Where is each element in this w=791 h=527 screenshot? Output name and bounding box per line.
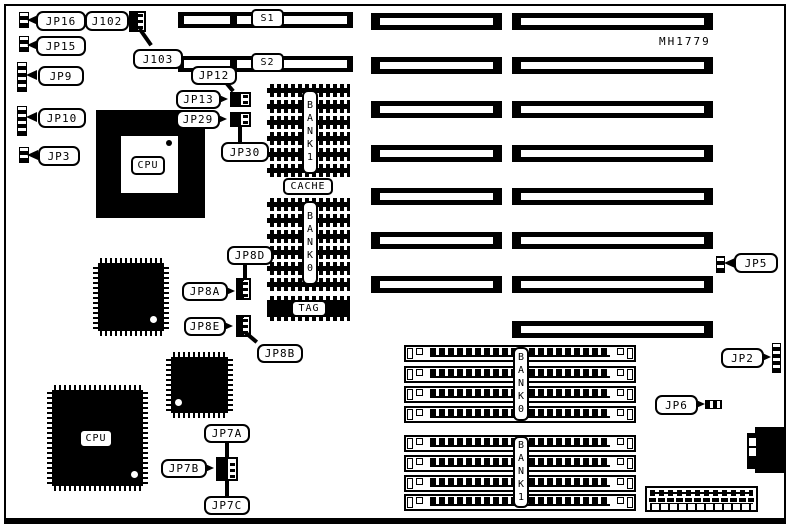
pointer-jp9: [26, 70, 37, 80]
callout-s2: S2: [251, 53, 284, 72]
callout-jp10: JP10: [38, 108, 86, 128]
simm-latch: [407, 438, 413, 449]
isa-slot-long: [512, 57, 713, 74]
simm-latch: [627, 389, 633, 400]
pointer-jp7c: [225, 479, 229, 497]
simm-latch: [617, 438, 624, 445]
callout-jp8a: JP8A: [182, 282, 228, 301]
simm-latch: [617, 458, 624, 465]
simm-latch: [416, 369, 423, 376]
qfp-pins-bottom: [54, 486, 141, 491]
callout-jp6: JP6: [655, 395, 698, 415]
pin1-dot: [131, 471, 138, 478]
callout-cpu-qfp: CPU: [79, 429, 113, 448]
simm-latch: [407, 497, 413, 508]
callout-jp3: JP3: [38, 146, 80, 166]
callout-s1: S1: [251, 9, 284, 28]
pointer-jp30: [238, 127, 242, 143]
simm-latch: [407, 478, 413, 489]
isa-slot-short: [371, 57, 502, 74]
label-simm-bank1: BANK1: [513, 436, 529, 508]
pointer-jp8d: [243, 263, 247, 280]
power-connector-pins: [650, 490, 753, 496]
simm-latch: [407, 458, 413, 469]
pin1-dot: [150, 316, 157, 323]
callout-cpu-socket: CPU: [131, 156, 165, 175]
simm-latch: [416, 497, 423, 504]
qfp-pins-right: [143, 392, 148, 484]
simm-latch: [627, 497, 633, 508]
callout-jp7c: JP7C: [204, 496, 250, 515]
simm-latch: [407, 369, 413, 380]
callout-jp2: JP2: [721, 348, 764, 368]
qfp-pins-bottom: [173, 413, 226, 418]
isa-slot-short: [371, 145, 502, 162]
pin1-dot: [175, 399, 182, 406]
callout-cache: CACHE: [283, 178, 333, 195]
isa-slot-short: [371, 13, 502, 30]
simm-latch: [416, 348, 423, 355]
isa-slot-long: [512, 276, 713, 293]
simm-latch: [617, 369, 624, 376]
callout-jp16: JP16: [36, 11, 86, 31]
simm-latch: [407, 348, 413, 359]
power-connector-sockets: [650, 503, 753, 510]
power-connector-key: [649, 498, 754, 502]
isa-slot-long: [512, 13, 713, 30]
simm-latch: [627, 369, 633, 380]
label-simm-bank0: BANK0: [513, 347, 529, 421]
keyboard-connector-pin: [749, 448, 756, 456]
simm-latch: [416, 438, 423, 445]
label-cache-bank0: BANK0: [302, 201, 318, 285]
simm-latch: [416, 478, 423, 485]
simm-latch: [617, 389, 624, 396]
jumper-block-jp8ad: [236, 278, 251, 300]
simm-latch: [627, 348, 633, 359]
isa-slot-short: [371, 232, 502, 249]
callout-jp7a: JP7A: [204, 424, 250, 443]
isa-slot-long: [512, 145, 713, 162]
callout-j102: J102: [85, 11, 129, 31]
callout-jp8b: JP8B: [257, 344, 303, 363]
callout-jp30: JP30: [221, 142, 269, 162]
keyboard-connector-pin: [749, 438, 756, 446]
pointer-jp3: [27, 150, 38, 160]
callout-jp12: JP12: [191, 66, 237, 85]
isa-slot-short: [371, 101, 502, 118]
simm-latch: [627, 458, 633, 469]
simm-latch: [627, 478, 633, 489]
jumper-jp6-pins: [705, 400, 722, 409]
label-cache-bank1: BANK1: [302, 90, 318, 174]
jumper-block-jp13: [230, 92, 251, 107]
isa-slot-long: [512, 188, 713, 205]
callout-jp15: JP15: [36, 36, 86, 56]
qfp-chip: [93, 258, 169, 336]
simm-latch: [416, 458, 423, 465]
callout-jp29: JP29: [176, 110, 220, 129]
jumper-block-jp7: [216, 457, 238, 481]
slot-divider: [230, 12, 237, 28]
simm-latch: [617, 497, 624, 504]
callout-tag: TAG: [291, 300, 327, 317]
callout-jp8e: JP8E: [184, 317, 226, 336]
power-connector: [645, 486, 758, 512]
pointer-jp10: [26, 112, 37, 122]
isa-slot-long: [512, 101, 713, 118]
pointer-jp7a: [225, 441, 229, 459]
jumper-jp2-pins: [772, 343, 781, 373]
simm-latch: [617, 478, 624, 485]
simm-latch: [617, 409, 624, 416]
callout-jp13: JP13: [176, 90, 221, 109]
isa-slot-short: [371, 188, 502, 205]
simm-latch: [416, 409, 423, 416]
isa-slot-short: [371, 276, 502, 293]
isa-slot-long: [512, 321, 713, 338]
callout-j103: J103: [133, 49, 183, 69]
motherboard-diagram: MH1779 JP16 JP15 JP9 JP10 JP3 J102 J103 …: [0, 0, 791, 527]
callout-jp7b: JP7B: [161, 459, 207, 478]
qfp-chip: [166, 352, 233, 418]
part-number: MH1779: [659, 35, 711, 48]
qfp-pins-bottom: [100, 331, 162, 336]
pin1-dot: [166, 140, 172, 146]
callout-jp8d: JP8D: [227, 246, 273, 265]
callout-jp9: JP9: [38, 66, 84, 86]
qfp-pins-right: [164, 265, 169, 329]
qfp-pins-right: [228, 359, 233, 411]
simm-latch: [627, 438, 633, 449]
simm-latch: [617, 348, 624, 355]
simm-latch: [627, 409, 633, 420]
isa-slot-long: [512, 232, 713, 249]
simm-latch: [407, 389, 413, 400]
keyboard-connector-body: [755, 427, 786, 473]
callout-jp5: JP5: [734, 253, 778, 273]
simm-latch: [416, 389, 423, 396]
simm-latch: [407, 409, 413, 420]
jumper-block-jp29: [230, 112, 251, 127]
